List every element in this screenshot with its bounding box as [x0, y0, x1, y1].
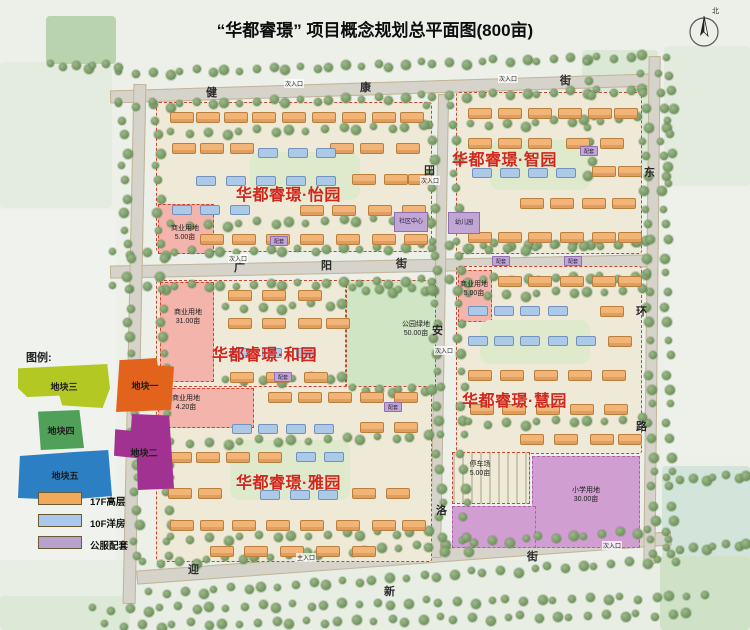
tree-icon — [523, 535, 530, 542]
tree-icon — [676, 476, 684, 484]
tree-icon — [222, 376, 229, 383]
tree-icon — [506, 91, 515, 100]
building-17f — [534, 370, 558, 381]
tree-icon — [667, 502, 676, 511]
tree-icon — [115, 98, 122, 105]
legend-plot-label: 地块五 — [51, 469, 78, 482]
tree-icon — [664, 591, 674, 601]
tree-icon — [533, 58, 540, 65]
building-10f — [494, 336, 514, 346]
tree-icon — [468, 613, 477, 622]
tree-icon — [305, 533, 312, 540]
tree-icon — [601, 289, 608, 296]
tree-icon — [215, 281, 225, 291]
tree-icon — [662, 317, 672, 327]
street-jiankang-char: 街 — [560, 72, 571, 88]
tree-icon — [649, 550, 657, 558]
tree-icon — [321, 580, 331, 590]
building-17f — [336, 520, 360, 531]
tree-icon — [424, 543, 433, 552]
building-10f — [232, 424, 252, 434]
tree-icon — [657, 186, 667, 196]
tree-icon — [676, 546, 684, 554]
building-10f — [172, 205, 192, 215]
tree-icon — [280, 65, 290, 75]
building-10f — [548, 306, 568, 316]
entrance-label: 次入口 — [284, 79, 304, 88]
tree-icon — [450, 170, 457, 177]
tree-icon — [502, 418, 511, 427]
tree-icon — [428, 93, 436, 101]
amenity-box: 配套 — [384, 402, 402, 412]
tree-icon — [240, 305, 248, 313]
tree-icon — [681, 608, 691, 618]
building-17f — [336, 234, 360, 245]
building-17f — [300, 234, 324, 245]
tree-icon — [341, 93, 351, 103]
tree-icon — [552, 287, 560, 295]
tree-icon — [468, 567, 475, 574]
tree-icon — [271, 603, 281, 613]
street-yingxin-char: 迎 — [188, 561, 199, 577]
tree-icon — [610, 55, 618, 63]
tree-icon — [156, 149, 166, 159]
building-17f — [230, 143, 254, 154]
tree-icon — [72, 61, 81, 70]
legend-type-label: 10F洋房 — [90, 516, 125, 530]
tree-icon — [356, 246, 363, 253]
building-17f — [568, 370, 592, 381]
building-10f — [324, 452, 344, 462]
tree-icon — [649, 400, 656, 407]
tree-icon — [465, 418, 472, 425]
tree-icon — [253, 125, 261, 133]
tree-icon — [340, 215, 349, 224]
tree-icon — [321, 217, 329, 225]
tree-icon — [358, 96, 365, 103]
tree-icon — [523, 89, 533, 99]
tree-icon — [337, 598, 347, 608]
tree-icon — [647, 337, 654, 344]
building-17f — [332, 205, 356, 216]
building-17f — [500, 370, 524, 381]
tree-icon — [667, 550, 675, 558]
tree-icon — [669, 516, 679, 526]
tree-icon — [362, 287, 370, 295]
building-17f — [252, 112, 276, 123]
tree-icon — [123, 318, 132, 327]
landuse-label-commercial-e: 商业用地 5.00亩 — [452, 280, 496, 298]
tree-icon — [649, 351, 657, 359]
tree-icon — [565, 614, 572, 621]
tree-icon — [297, 96, 304, 103]
tree-icon — [384, 246, 393, 255]
street-yingxin-char: 新 — [384, 583, 395, 599]
tree-icon — [286, 435, 296, 445]
tree-icon — [272, 128, 281, 137]
tree-icon — [428, 60, 436, 68]
tree-icon — [453, 238, 460, 245]
tree-icon — [165, 552, 173, 560]
tree-icon — [646, 288, 654, 296]
building-10f — [288, 148, 308, 158]
tree-icon — [459, 513, 467, 521]
building-17f — [396, 143, 420, 154]
landuse-name: 小学用地 — [572, 487, 600, 494]
tree-icon — [424, 430, 434, 440]
building-10f — [314, 424, 334, 434]
tree-icon — [568, 243, 577, 252]
tree-icon — [660, 104, 669, 113]
legend-swatch-public — [38, 536, 82, 549]
building-17f — [618, 166, 642, 177]
tree-icon — [312, 248, 320, 256]
tree-icon — [132, 70, 140, 78]
tree-icon — [356, 601, 363, 608]
tree-icon — [302, 128, 309, 135]
tree-icon — [521, 292, 531, 302]
building-17f — [170, 112, 194, 123]
street-jiankang-char: 康 — [360, 79, 371, 95]
amenity-box: 配套 — [580, 146, 598, 156]
tree-icon — [274, 533, 283, 542]
tree-icon — [222, 605, 229, 612]
landuse-name: 商业用地 — [172, 395, 200, 402]
building-17f — [468, 370, 492, 381]
tree-icon — [272, 220, 281, 229]
tree-icon — [176, 68, 183, 75]
building-17f — [200, 520, 224, 531]
tree-icon — [256, 582, 266, 592]
tree-icon — [458, 320, 466, 328]
tree-icon — [375, 60, 383, 68]
tree-icon — [375, 93, 383, 101]
tree-icon — [377, 543, 387, 553]
tree-icon — [389, 615, 397, 623]
tree-icon — [431, 300, 438, 307]
landuse-area: 5.00亩 — [464, 290, 485, 297]
tree-icon — [204, 602, 214, 612]
building-17f — [600, 306, 624, 317]
tree-icon — [157, 195, 166, 204]
building-17f — [618, 232, 642, 243]
tree-icon — [447, 102, 454, 109]
tree-icon — [373, 277, 381, 285]
tree-icon — [418, 91, 425, 98]
tree-icon — [689, 543, 698, 552]
tree-icon — [235, 128, 242, 135]
building-17f — [400, 112, 424, 123]
tree-icon — [324, 96, 333, 105]
tree-icon — [722, 471, 730, 479]
tree-icon — [639, 138, 646, 145]
tree-icon — [205, 438, 214, 447]
landuse-name: 公园绿地 — [402, 321, 430, 328]
building-17f — [498, 108, 522, 119]
tree-icon — [655, 70, 662, 77]
tree-icon — [370, 618, 377, 625]
building-10f — [230, 205, 250, 215]
tree-icon — [294, 279, 301, 286]
building-10f — [576, 336, 596, 346]
tree-icon — [649, 502, 658, 511]
tree-icon — [669, 104, 679, 114]
tree-icon — [423, 596, 430, 603]
tree-icon — [431, 204, 440, 213]
building-17f — [498, 232, 522, 243]
building-17f — [582, 198, 606, 209]
tree-icon — [277, 305, 287, 315]
tree-icon — [456, 349, 466, 359]
tree-icon — [337, 372, 347, 382]
tree-icon — [375, 285, 384, 294]
tree-icon — [533, 91, 540, 98]
tree-icon — [59, 63, 67, 71]
tree-icon — [601, 418, 608, 425]
garden-label-yayuan: 华都睿璟·雅园 — [236, 469, 341, 493]
building-17f — [282, 112, 306, 123]
building-10f — [520, 336, 540, 346]
tree-icon — [590, 563, 597, 570]
tree-icon — [167, 533, 174, 540]
tree-icon — [139, 558, 146, 565]
tree-icon — [543, 562, 551, 570]
building-17f — [570, 404, 594, 415]
tree-icon — [657, 138, 664, 145]
tree-icon — [408, 284, 416, 292]
building-17f — [614, 108, 638, 119]
tree-icon — [259, 303, 268, 312]
legend-type-label: 17F高层 — [90, 494, 125, 508]
tree-icon — [393, 435, 401, 443]
tree-icon — [119, 208, 129, 218]
tree-icon — [193, 65, 201, 73]
tree-icon — [669, 610, 678, 619]
tree-icon — [462, 533, 471, 542]
tree-icon — [582, 416, 592, 426]
tree-icon — [337, 299, 347, 309]
entrance-label-main: 主入口 — [296, 553, 316, 562]
tree-icon — [303, 617, 310, 624]
tree-icon — [667, 86, 676, 95]
building-10f — [520, 306, 540, 316]
tree-icon — [597, 243, 604, 250]
tree-icon — [552, 416, 560, 424]
street-guangyang-char: 街 — [396, 255, 407, 271]
tree-icon — [662, 419, 670, 427]
tree-icon — [130, 488, 138, 496]
tree-icon — [598, 530, 606, 538]
tree-icon — [552, 274, 560, 282]
tree-icon — [580, 533, 587, 540]
tree-icon — [289, 302, 296, 309]
building-17f — [612, 198, 636, 209]
tree-icon — [741, 471, 750, 481]
legend-swatch-17f — [38, 492, 82, 505]
tree-icon — [389, 125, 397, 133]
tree-icon — [642, 206, 649, 213]
building-17f — [498, 276, 522, 287]
building-10f — [286, 424, 306, 434]
tree-icon — [101, 620, 108, 627]
tree-icon — [193, 98, 201, 106]
tree-icon — [534, 532, 542, 540]
tree-icon — [587, 91, 596, 100]
tree-icon — [568, 118, 577, 127]
tree-icon — [255, 531, 263, 539]
tree-icon — [400, 123, 409, 132]
building-17f — [550, 198, 574, 209]
building-17f — [604, 404, 628, 415]
tree-icon — [639, 89, 647, 97]
tree-icon — [496, 566, 505, 575]
tree-icon — [664, 235, 673, 244]
tree-icon — [224, 440, 234, 450]
tree-icon — [432, 573, 441, 582]
tree-icon — [722, 540, 730, 548]
tree-icon — [453, 334, 462, 343]
street-inner-char: 安 — [432, 322, 443, 338]
building-17f — [168, 488, 192, 499]
building-17f — [312, 112, 336, 123]
tree-icon — [321, 620, 329, 628]
tree-icon — [127, 254, 136, 263]
tree-icon — [205, 249, 214, 258]
tree-icon — [437, 431, 444, 438]
building-17f — [520, 434, 544, 445]
street-inner-char: 洛 — [436, 502, 447, 518]
tree-icon — [461, 431, 468, 438]
tree-icon — [157, 623, 167, 630]
tree-icon — [217, 619, 227, 629]
tree-icon — [588, 157, 597, 166]
tree-icon — [428, 136, 437, 145]
tree-icon — [664, 117, 671, 124]
tree-icon — [453, 597, 462, 606]
building-17f — [528, 108, 552, 119]
building-17f — [210, 546, 234, 557]
tree-icon — [161, 350, 168, 357]
tree-icon — [314, 65, 322, 73]
building-17f — [326, 318, 350, 329]
tree-icon — [579, 561, 589, 571]
tree-icon — [432, 402, 441, 411]
tree-icon — [462, 60, 472, 70]
tree-icon — [445, 58, 454, 67]
tree-icon — [236, 100, 243, 107]
building-17f — [360, 143, 384, 154]
landuse-label-parking: 停车场 5.00亩 — [452, 460, 508, 478]
tree-icon — [633, 529, 643, 539]
kindergarten-box: 幼儿园 — [448, 212, 480, 234]
tree-icon — [370, 123, 377, 130]
tree-icon — [355, 531, 365, 541]
tree-icon — [660, 152, 668, 160]
tree-icon — [665, 337, 672, 344]
tree-icon — [583, 58, 590, 65]
tree-icon — [455, 300, 462, 307]
tree-icon — [532, 119, 539, 126]
building-10f — [556, 168, 576, 178]
garden-label-heyuan: 华都睿璟·和园 — [212, 341, 317, 365]
tree-icon — [413, 541, 421, 549]
tree-icon — [374, 433, 381, 440]
building-17f — [394, 422, 418, 433]
tree-icon — [132, 103, 140, 111]
tree-icon — [284, 619, 294, 629]
building-10f — [316, 148, 336, 158]
tree-icon — [167, 128, 174, 135]
building-17f — [298, 392, 322, 403]
building-10f — [494, 306, 514, 316]
tree-icon — [343, 433, 352, 442]
tree-icon — [642, 254, 652, 264]
building-10f — [468, 336, 488, 346]
tree-icon — [367, 576, 376, 585]
tree-icon — [224, 536, 234, 546]
entrance-label: 次入口 — [498, 74, 518, 83]
tree-icon — [647, 536, 654, 543]
tree-icon — [657, 89, 665, 97]
tree-icon — [322, 245, 331, 254]
tree-icon — [236, 621, 243, 628]
tree-icon — [667, 400, 674, 407]
tree-icon — [120, 623, 128, 630]
building-17f — [402, 520, 426, 531]
landuse-name: 停车场 — [470, 461, 491, 468]
tree-icon — [665, 385, 675, 395]
tree-icon — [314, 98, 322, 106]
tree-icon — [274, 438, 283, 447]
street-donghuan-char: 环 — [636, 303, 647, 319]
tree-icon — [642, 104, 651, 113]
building-17f — [352, 488, 376, 499]
tree-icon — [619, 287, 627, 295]
amenity-box: 配套 — [274, 372, 292, 382]
tree-icon — [505, 614, 512, 621]
building-10f — [548, 336, 568, 346]
building-17f — [618, 434, 642, 445]
landuse-label-commercial-w: 商业用地 31.00亩 — [162, 308, 214, 326]
tree-icon — [506, 58, 515, 67]
building-17f — [590, 434, 614, 445]
tree-icon — [156, 604, 163, 611]
building-17f — [196, 112, 220, 123]
tree-icon — [586, 593, 595, 602]
tree-icon — [627, 86, 636, 95]
tree-icon — [602, 610, 611, 619]
tree-icon — [209, 68, 218, 77]
tree-icon — [181, 587, 190, 596]
tree-icon — [149, 98, 156, 105]
tree-icon — [585, 77, 593, 85]
legend-plot-label: 地块二 — [130, 446, 157, 459]
tree-icon — [632, 610, 639, 617]
tree-icon — [709, 543, 716, 550]
community-center-box: 社区中心 — [394, 212, 428, 232]
tree-icon — [205, 283, 214, 292]
tree-icon — [561, 564, 570, 573]
site-plan: 社区中心 幼儿园 配套 配套 配套 配套 配套 配套 商业用地 5.00亩 商业… — [0, 0, 750, 630]
tree-icon — [651, 516, 661, 526]
tree-icon — [386, 601, 395, 610]
tree-icon — [647, 434, 656, 443]
tree-icon — [582, 287, 592, 297]
legend-plot-1: 地块一 — [116, 358, 174, 412]
tree-icon — [352, 615, 362, 625]
tree-icon — [408, 384, 416, 392]
tree-icon — [418, 275, 425, 282]
